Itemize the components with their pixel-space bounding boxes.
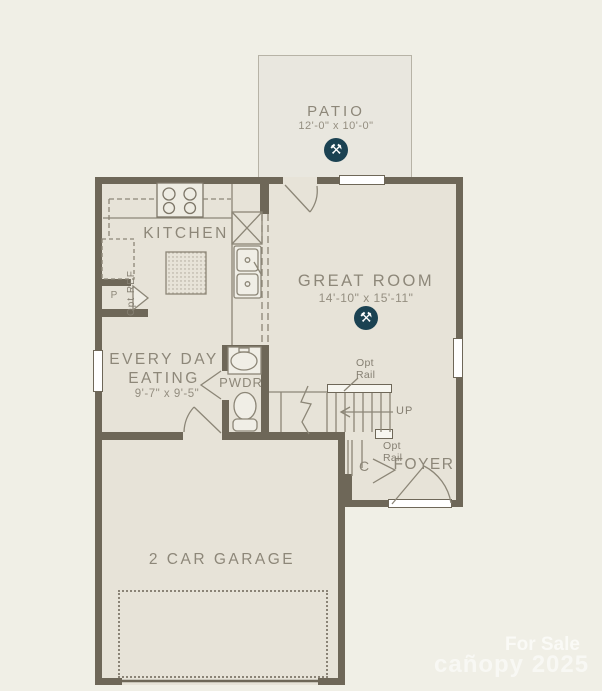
great-room-right-window [453,338,463,378]
floor-plan: PATIO 12'-0" x 10'-0" KITCHEN GREAT ROOM… [0,0,602,691]
garage-door-opening [183,432,222,440]
eating-label-line1: EVERY DAY [109,351,219,369]
front-door-threshold [388,499,452,508]
opt-ref-label: Opt REF [126,238,137,316]
wall-pantry-bottom [95,309,148,317]
up-label: UP [396,405,413,417]
wall-garage-left [95,432,102,685]
opt-rail-upper-label: Opt Rail [356,357,375,381]
wall-garage-bottom-left [95,678,122,685]
opt-rail-upper-line1: Opt [356,357,375,369]
opt-rail-lower-label: Opt Rail [383,440,402,464]
eating-window [93,350,103,392]
opt-rail-upper-line2: Rail [356,369,375,381]
closet-label: C [359,458,369,474]
wall-closet-left [345,474,352,507]
powder-label: PWDR [219,375,263,390]
great-room-feature-marker: ⚒ [354,306,378,330]
watermark-canopy: cañopy 2025 [434,651,589,679]
stair-rail-upper [327,384,392,393]
patio-door-opening [283,177,317,184]
eating-dims: 9'-7" x 9'-5" [135,388,199,400]
kitchen-label: KITCHEN [143,225,229,243]
hammer-wrench-icon: ⚒ [360,311,373,325]
opt-rail-lower-line1: Opt [383,440,402,452]
hammer-wrench-icon: ⚒ [330,143,343,157]
eating-label-line2: EATING [128,370,200,388]
wall-powder-right [261,345,269,440]
garage-door-outline [118,590,328,678]
great-room-dims: 14'-10" x 15'-11" [319,291,414,305]
foyer-label: FOYER [394,456,455,474]
great-room-top-window [339,175,385,185]
wall-garage-right [338,432,345,685]
wall-top [95,177,463,184]
pantry-label: P [111,290,118,301]
wall-kitchen-stub [260,177,269,214]
opt-rail-lower-line2: Rail [383,452,402,464]
garage-label: 2 CAR GARAGE [149,551,295,569]
patio-feature-marker: ⚒ [324,138,348,162]
stair-rail-lower [375,429,393,439]
great-room-label: GREAT ROOM [298,272,434,291]
patio-dims: 12'-0" x 10'-0" [298,120,373,132]
wall-garage-bottom-right [318,678,345,685]
patio-label: PATIO [307,103,365,120]
